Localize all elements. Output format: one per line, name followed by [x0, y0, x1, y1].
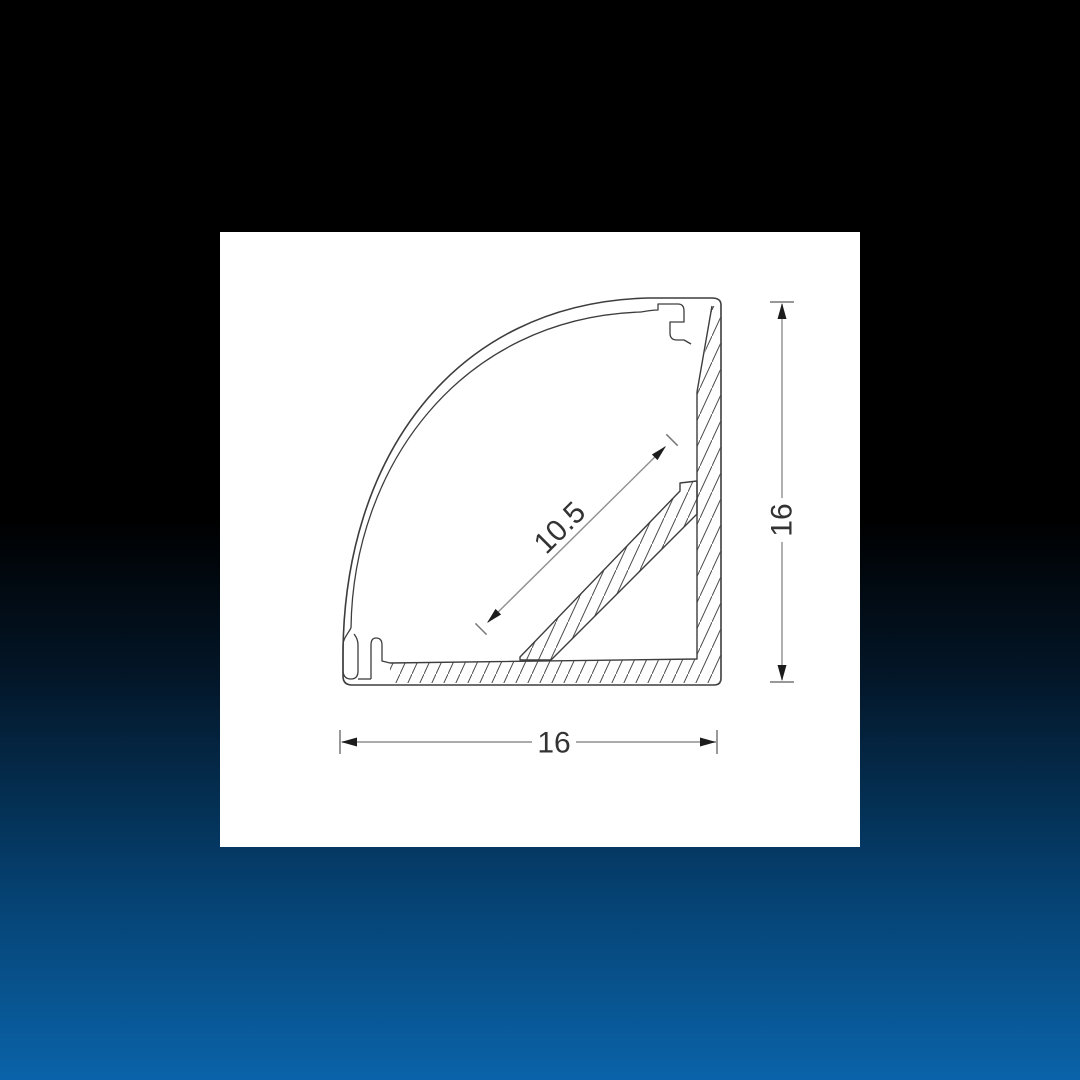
dimension-height: 16 [766, 302, 799, 682]
profile-technical-drawing: 16 16 10.5 [220, 232, 860, 847]
profile-outer-outline [343, 298, 721, 685]
page-background: { "page": { "background_top_color": "#00… [0, 0, 1080, 1080]
dimension-height-label: 16 [766, 503, 799, 536]
dimension-width-label: 16 [537, 727, 570, 760]
drawing-panel: 16 16 10.5 [220, 232, 860, 847]
dimension-width: 16 [340, 727, 717, 760]
